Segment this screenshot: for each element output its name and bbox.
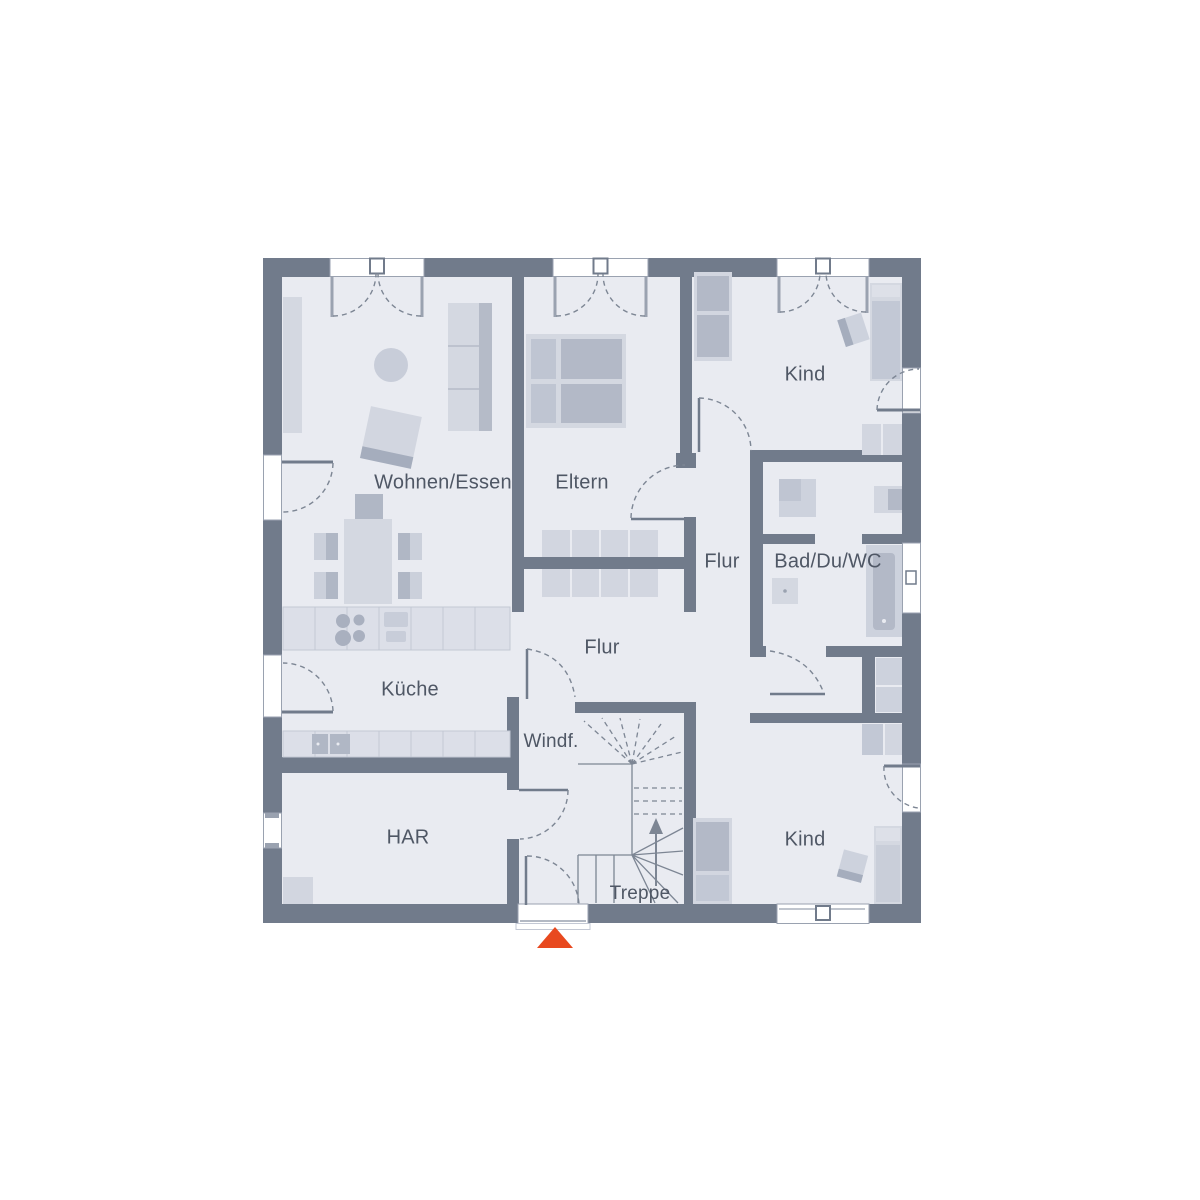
- label-har: HAR: [387, 827, 430, 850]
- vanity-sink: [874, 486, 902, 513]
- bed-kind-top: [870, 283, 902, 381]
- label-kind-bottom: Kind: [785, 829, 826, 852]
- kitchen-counter-bottom: [283, 731, 510, 757]
- nightstand-kind-top: [862, 424, 902, 455]
- armchair: [360, 406, 422, 469]
- window-bad: [903, 543, 921, 613]
- wardrobe-kind-bottom: [693, 818, 732, 904]
- label-windfang: Windf.: [523, 731, 578, 753]
- floor-plan-drawing: [0, 0, 1200, 1200]
- label-treppe: Treppe: [610, 883, 671, 905]
- side-table: [374, 348, 408, 382]
- washer: [283, 877, 313, 904]
- double-bed: [526, 334, 626, 428]
- label-wohnen-essen: Wohnen/Essen: [374, 472, 512, 495]
- label-flur-upper: Flur: [704, 551, 739, 574]
- shower: [779, 479, 816, 517]
- toilet: [772, 578, 798, 604]
- bed-kind-bottom: [874, 826, 902, 904]
- window-har: [264, 813, 282, 848]
- sink: [384, 612, 408, 627]
- wall-unit: [448, 303, 492, 431]
- label-kind-top: Kind: [785, 364, 826, 387]
- label-bad: Bad/Du/WC: [774, 551, 881, 574]
- window-kind-bottom: [777, 904, 869, 924]
- entrance-arrow: [537, 927, 573, 948]
- living-sideboard: [283, 297, 302, 433]
- kitchen-counter-top: [283, 607, 510, 650]
- wardrobe-kind-top: [694, 272, 732, 361]
- floor-plan-page: Wohnen/Essen Eltern Kind Flur Bad/Du/WC …: [0, 0, 1200, 1200]
- cabinet-kind-bottom: [862, 724, 902, 755]
- label-kueche: Küche: [381, 679, 439, 702]
- hall-cabinet: [876, 658, 902, 712]
- label-eltern: Eltern: [555, 472, 608, 495]
- label-flur-main: Flur: [584, 637, 619, 660]
